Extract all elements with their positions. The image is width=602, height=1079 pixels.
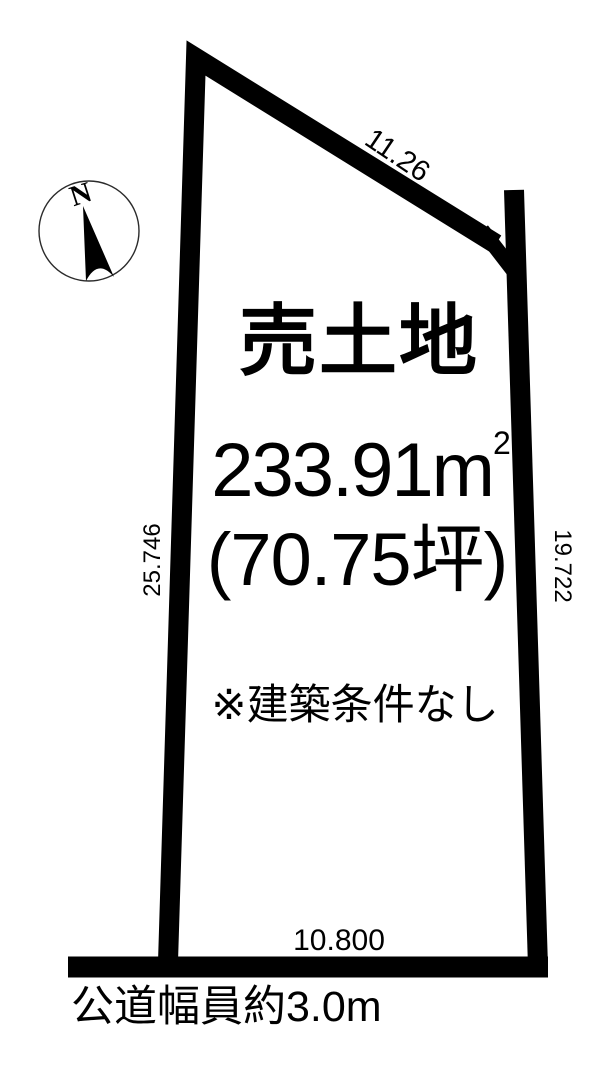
plot-title: 売土地 <box>239 302 479 380</box>
plot-right-boundary <box>514 190 538 967</box>
land-plot-diagram: N 11.26 25.746 19.722 10.800 売土地 233.91m… <box>0 0 602 1079</box>
area-value: 233.91m <box>211 428 493 513</box>
building-conditions-note: ※建築条件なし <box>211 684 498 726</box>
road-width-label: 公道幅員約3.0m <box>71 986 382 1029</box>
compass-needle-icon <box>83 206 114 281</box>
area-exponent: 2 <box>493 425 511 461</box>
dimension-left-edge: 25.746 <box>141 523 165 596</box>
dimension-right-edge: 19.722 <box>550 529 574 602</box>
plot-area-tsubo: (70.75坪) <box>207 523 507 597</box>
plot-area-square-meters: 233.91m2 <box>211 427 511 509</box>
dimension-bottom-edge: 10.800 <box>293 926 385 956</box>
